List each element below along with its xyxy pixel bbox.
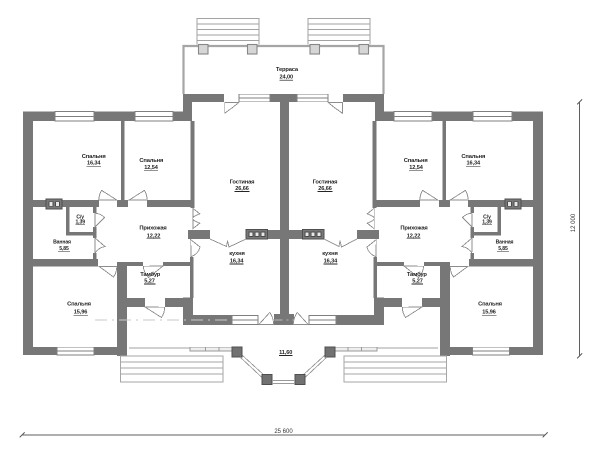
svg-text:15,96: 15,96: [482, 310, 496, 316]
svg-text:5,85: 5,85: [498, 246, 508, 252]
svg-text:Прихожая: Прихожая: [400, 225, 427, 231]
svg-text:11,60: 11,60: [279, 350, 292, 356]
svg-text:Спальня: Спальня: [461, 154, 485, 160]
svg-text:Спальня: Спальня: [82, 154, 106, 160]
svg-text:Ванная: Ванная: [496, 240, 514, 246]
svg-text:12,54: 12,54: [409, 165, 423, 171]
svg-text:15,96: 15,96: [74, 310, 88, 316]
svg-text:5,85: 5,85: [59, 246, 69, 252]
svg-text:Тамбур: Тамбур: [140, 271, 161, 278]
svg-text:16,34: 16,34: [230, 258, 244, 264]
svg-text:Прихожая: Прихожая: [139, 225, 166, 231]
svg-text:25 600: 25 600: [274, 429, 293, 435]
svg-text:кухня: кухня: [322, 251, 337, 257]
svg-text:16,34: 16,34: [324, 258, 338, 264]
svg-text:Гостиная: Гостиная: [230, 179, 255, 185]
svg-text:16,34: 16,34: [467, 161, 481, 167]
svg-text:кухня: кухня: [229, 251, 244, 257]
svg-text:Тамбур: Тамбур: [407, 271, 428, 278]
svg-text:12,54: 12,54: [144, 165, 158, 171]
svg-text:Спальня: Спальня: [478, 302, 502, 308]
svg-text:Спальня: Спальня: [67, 302, 91, 308]
svg-text:5,27: 5,27: [412, 279, 423, 285]
svg-text:5,27: 5,27: [144, 279, 155, 285]
svg-text:16,34: 16,34: [87, 161, 101, 167]
svg-text:Ванная: Ванная: [53, 240, 71, 246]
svg-text:Спальня: Спальня: [139, 158, 163, 164]
svg-text:Спальня: Спальня: [404, 158, 428, 164]
svg-text:24,00: 24,00: [280, 74, 294, 80]
svg-text:12,22: 12,22: [407, 233, 421, 239]
svg-text:12 000: 12 000: [571, 213, 577, 232]
svg-text:Терраса: Терраса: [276, 67, 299, 73]
svg-text:12,22: 12,22: [147, 233, 161, 239]
svg-text:Гостиная: Гостиная: [313, 179, 338, 185]
